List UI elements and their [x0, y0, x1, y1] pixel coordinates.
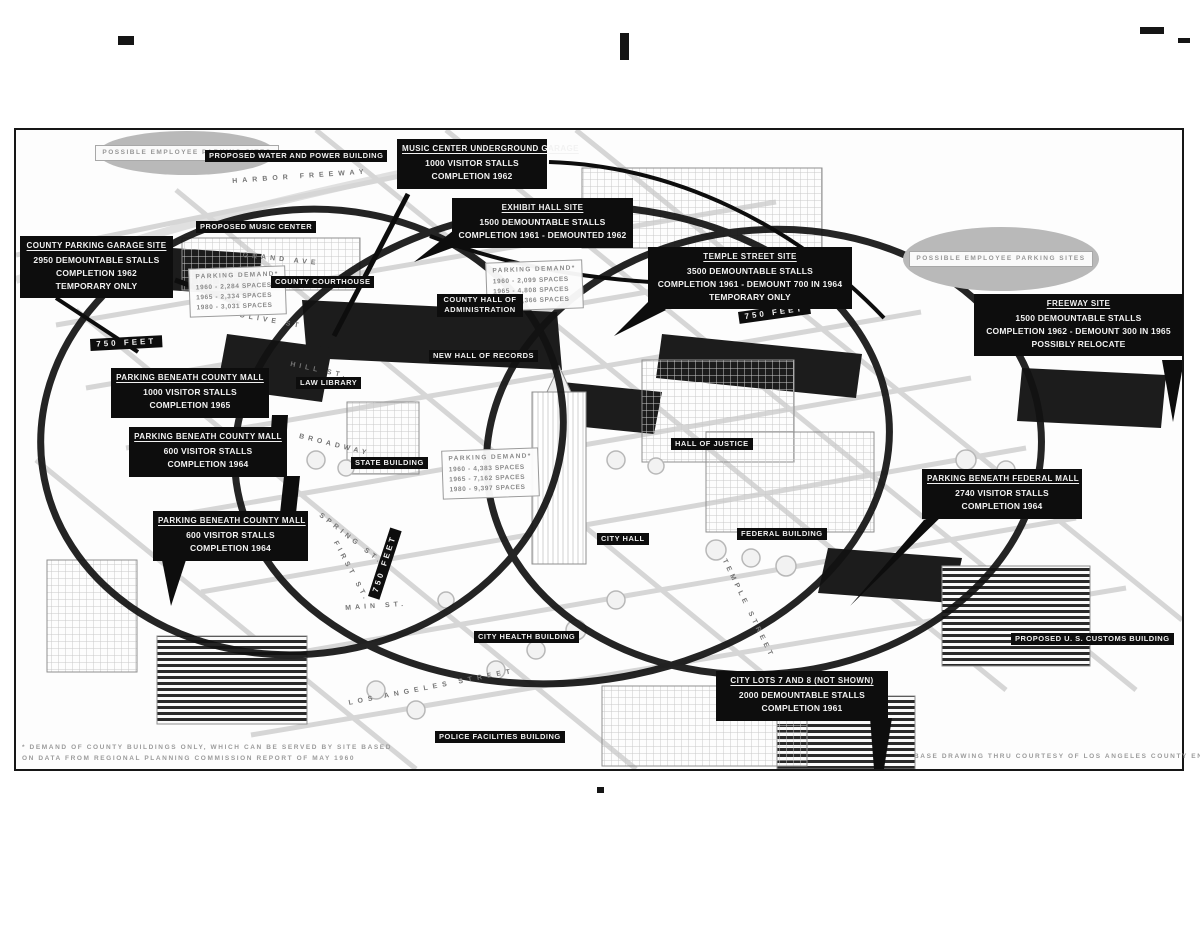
callout-music-center-garage: MUSIC CENTER UNDERGROUND GARAGE 1000 VIS…	[397, 139, 547, 189]
callout-title: CITY LOTS 7 AND 8 (NOT SHOWN)	[721, 676, 883, 685]
callout-county-mall-north: PARKING BENEATH COUNTY MALL 1000 VISITOR…	[111, 368, 269, 418]
callout-county-parking-garage: COUNTY PARKING GARAGE SITE 2950 DEMOUNTA…	[20, 236, 173, 298]
parking-demand-table-city-hall: PARKING DEMAND* 1960 - 4,383 SPACES 1965…	[441, 447, 540, 500]
callout-line: COMPLETION 1962 - DEMOUNT 300 IN 1965	[979, 325, 1178, 338]
registration-mark	[1140, 27, 1164, 34]
callout-temple-street-site: TEMPLE STREET SITE 3500 DEMOUNTABLE STAL…	[648, 247, 852, 309]
callout-city-lots-7-8: CITY LOTS 7 AND 8 (NOT SHOWN) 2000 DEMOU…	[716, 671, 888, 721]
callout-county-mall-center: PARKING BENEATH COUNTY MALL 600 VISITOR …	[129, 427, 287, 477]
callout-line: 1000 VISITOR STALLS	[116, 386, 264, 399]
building-label-new-hall-records: NEW HALL OF RECORDS	[429, 350, 538, 362]
callout-title: PARKING BENEATH COUNTY MALL	[134, 432, 282, 441]
callout-line: COMPLETION 1961	[721, 702, 883, 715]
building-label-us-customs: PROPOSED U. S. CUSTOMS BUILDING	[1011, 633, 1174, 645]
callout-title: PARKING BENEATH COUNTY MALL	[116, 373, 264, 382]
callout-title: FREEWAY SITE	[979, 299, 1178, 308]
registration-mark	[620, 33, 629, 60]
callout-county-mall-south: PARKING BENEATH COUNTY MALL 600 VISITOR …	[153, 511, 308, 561]
callout-line: 2740 VISITOR STALLS	[927, 487, 1077, 500]
callout-title: MUSIC CENTER UNDERGROUND GARAGE	[402, 144, 542, 153]
callout-line: COMPLETION 1962	[25, 267, 168, 280]
callout-line: 600 VISITOR STALLS	[158, 529, 303, 542]
city-hall-tower	[532, 392, 586, 564]
building-label-hall-of-justice: HALL OF JUSTICE	[671, 438, 753, 450]
table-row: 1980 - 9,397 SPACES	[449, 483, 533, 496]
footnote-right-line: BASE DRAWING THRU COURTESY OF LOS ANGELE…	[914, 751, 1200, 762]
registration-mark	[1178, 38, 1190, 43]
callout-line: COMPLETION 1964	[158, 542, 303, 555]
employee-parking-blob-right: POSSIBLE EMPLOYEE PARKING SITES	[903, 227, 1099, 291]
callout-title: PARKING BENEATH FEDERAL MALL	[927, 474, 1077, 483]
customs-building	[942, 566, 1090, 666]
callout-title: PARKING BENEATH COUNTY MALL	[158, 516, 303, 525]
parking-demand-table-courthouse: PARKING DEMAND* 1960 - 2,284 SPACES 1965…	[188, 265, 287, 318]
callout-line: POSSIBLY RELOCATE	[979, 338, 1178, 351]
callout-line: 1500 DEMOUNTABLE STALLS	[457, 216, 628, 229]
callout-line: COMPLETION 1964	[134, 458, 282, 471]
callout-line: 2000 DEMOUNTABLE STALLS	[721, 689, 883, 702]
callout-line: COMPLETION 1961 - DEMOUNTED 1962	[457, 229, 628, 242]
callout-exhibit-hall: EXHIBIT HALL SITE 1500 DEMOUNTABLE STALL…	[452, 198, 633, 248]
building-label-state-building: STATE BUILDING	[351, 457, 428, 469]
callout-title: EXHIBIT HALL SITE	[457, 203, 628, 212]
callout-line: COMPLETION 1962	[402, 170, 542, 183]
footnote-left-line2: ON DATA FROM REGIONAL PLANNING COMMISSIO…	[22, 753, 392, 764]
callout-line: 1000 VISITOR STALLS	[402, 157, 542, 170]
building-label-city-hall: CITY HALL	[597, 533, 649, 545]
callout-line: TEMPORARY ONLY	[653, 291, 847, 304]
registration-mark	[118, 36, 134, 45]
callout-line: 2950 DEMOUNTABLE STALLS	[25, 254, 168, 267]
callout-federal-mall: PARKING BENEATH FEDERAL MALL 2740 VISITO…	[922, 469, 1082, 519]
employee-parking-label-right: POSSIBLE EMPLOYEE PARKING SITES	[909, 251, 1092, 267]
building-label-proposed-music-center: PROPOSED MUSIC CENTER	[196, 221, 316, 233]
callout-line: COMPLETION 1965	[116, 399, 264, 412]
footnote-right: BASE DRAWING THRU COURTESY OF LOS ANGELE…	[914, 751, 1200, 762]
employee-parking-left-line1: POSSIBLE EMPLOYEE	[102, 149, 198, 156]
footnote-left-line1: * DEMAND OF COUNTY BUILDINGS ONLY, WHICH…	[22, 742, 392, 753]
callout-freeway-site: FREEWAY SITE 1500 DEMOUNTABLE STALLS COM…	[974, 294, 1183, 356]
building-label-county-courthouse: COUNTY COURTHOUSE	[271, 276, 374, 288]
building-label-county-hall-admin: COUNTY HALL OF ADMINISTRATION	[437, 294, 523, 317]
employee-parking-right-label: POSSIBLE EMPLOYEE PARKING SITES	[916, 255, 1085, 262]
callout-line: 600 VISITOR STALLS	[134, 445, 282, 458]
callout-line: COMPLETION 1961 - DEMOUNT 700 IN 1964	[653, 278, 847, 291]
callout-title: TEMPLE STREET SITE	[653, 252, 847, 261]
table-row: 1980 - 3,031 SPACES	[196, 301, 280, 314]
building-label-water-power: PROPOSED WATER AND POWER BUILDING	[205, 150, 387, 162]
building-label-city-health: CITY HEALTH BUILDING	[474, 631, 579, 643]
building-label-federal-building: FEDERAL BUILDING	[737, 528, 827, 540]
callout-line: TEMPORARY ONLY	[25, 280, 168, 293]
callout-line: 3500 DEMOUNTABLE STALLS	[653, 265, 847, 278]
building-label-police-facilities: POLICE FACILITIES BUILDING	[435, 731, 565, 743]
building-label-law-library: LAW LIBRARY	[296, 377, 361, 389]
registration-mark	[597, 787, 604, 793]
callout-title: COUNTY PARKING GARAGE SITE	[25, 241, 168, 250]
callout-line: 1500 DEMOUNTABLE STALLS	[979, 312, 1178, 325]
callout-line: COMPLETION 1964	[927, 500, 1077, 513]
footnote-left: * DEMAND OF COUNTY BUILDINGS ONLY, WHICH…	[22, 742, 392, 765]
